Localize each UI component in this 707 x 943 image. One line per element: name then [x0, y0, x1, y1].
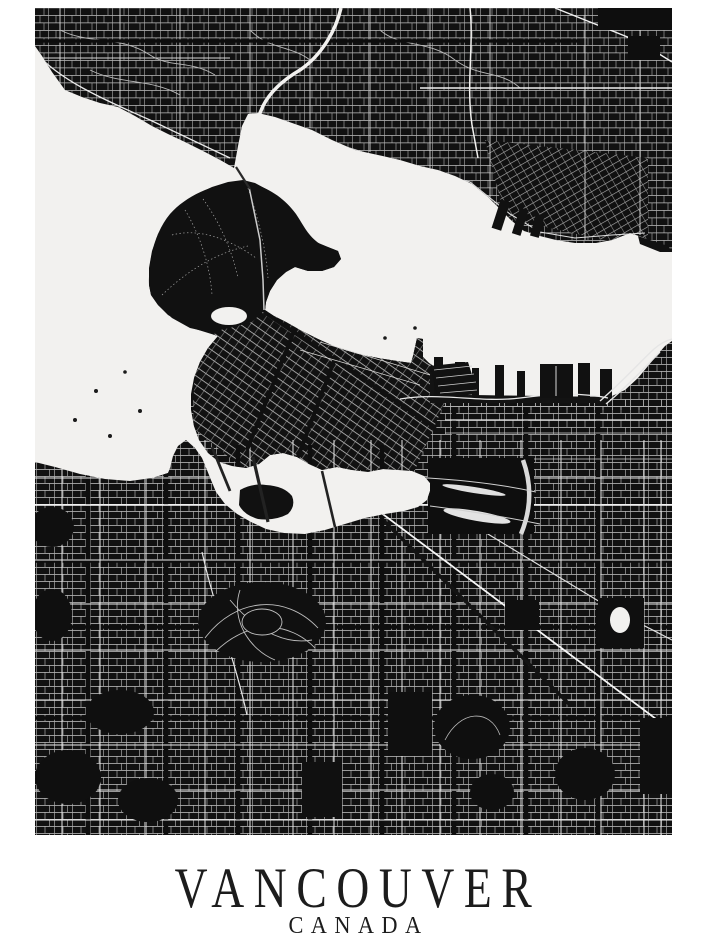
- svg-text:CANADA: CANADA: [288, 912, 428, 939]
- svg-text:VANCOUVER: VANCOUVER: [175, 857, 542, 920]
